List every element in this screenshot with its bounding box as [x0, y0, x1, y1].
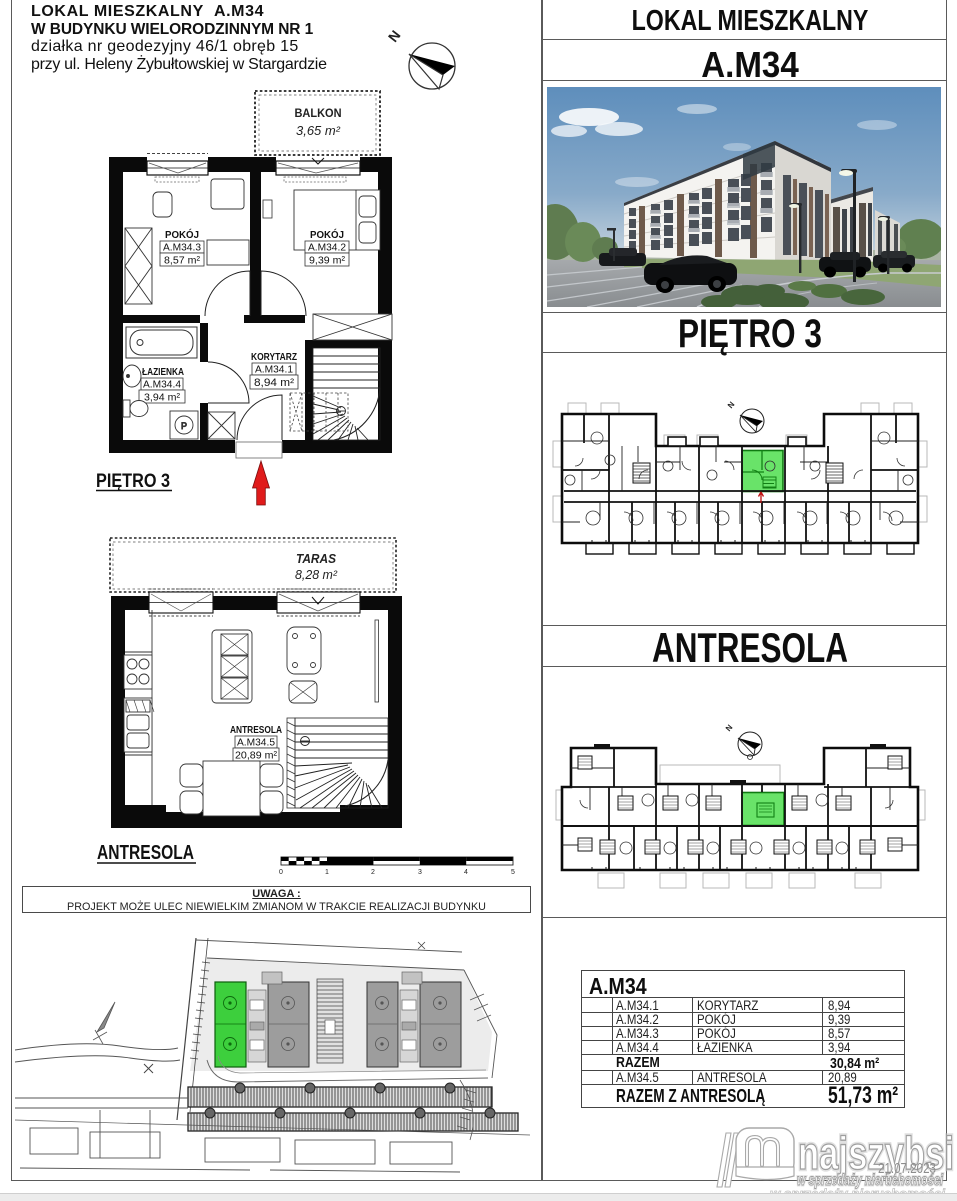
svg-text:A.M34.2: A.M34.2	[308, 243, 346, 254]
svg-text:A.M34.5: A.M34.5	[237, 738, 275, 749]
svg-text:BALKON: BALKON	[295, 106, 342, 120]
svg-text:5: 5	[511, 869, 515, 876]
svg-text:A.M34.3: A.M34.3	[163, 243, 201, 254]
svg-text:4: 4	[464, 869, 468, 876]
svg-text:PIĘTRO 3: PIĘTRO 3	[96, 471, 170, 492]
svg-text:A.M34.4: A.M34.4	[143, 380, 181, 391]
svg-text:20,89 m²: 20,89 m²	[235, 751, 278, 762]
svg-text:TARAS: TARAS	[296, 552, 337, 566]
svg-text:8,57 m²: 8,57 m²	[164, 256, 201, 267]
svg-text:ANTRESOLA: ANTRESOLA	[230, 724, 282, 736]
svg-text:N: N	[385, 27, 404, 45]
svg-text:2: 2	[371, 869, 375, 876]
svg-text:POKÓJ: POKÓJ	[310, 228, 344, 241]
svg-text:8,94 m²: 8,94 m²	[254, 377, 294, 389]
svg-text:3,65 m²: 3,65 m²	[296, 124, 341, 138]
svg-text:9,39 m²: 9,39 m²	[309, 256, 346, 267]
svg-text:ŁAZIENKA: ŁAZIENKA	[142, 367, 184, 378]
svg-text:0: 0	[279, 869, 283, 876]
svg-text:POKÓJ: POKÓJ	[165, 228, 199, 241]
svg-text:3: 3	[418, 869, 422, 876]
svg-text:N: N	[726, 400, 737, 410]
svg-text:1: 1	[325, 869, 329, 876]
svg-text:KORYTARZ: KORYTARZ	[251, 351, 297, 363]
svg-text:ANTRESOLA: ANTRESOLA	[97, 841, 194, 864]
svg-text:P: P	[181, 421, 187, 431]
svg-text:A.M34.1: A.M34.1	[255, 365, 293, 376]
svg-text:N: N	[724, 723, 735, 733]
svg-text:8,28 m²: 8,28 m²	[295, 568, 338, 582]
svg-text:3,94 m²: 3,94 m²	[144, 393, 181, 404]
